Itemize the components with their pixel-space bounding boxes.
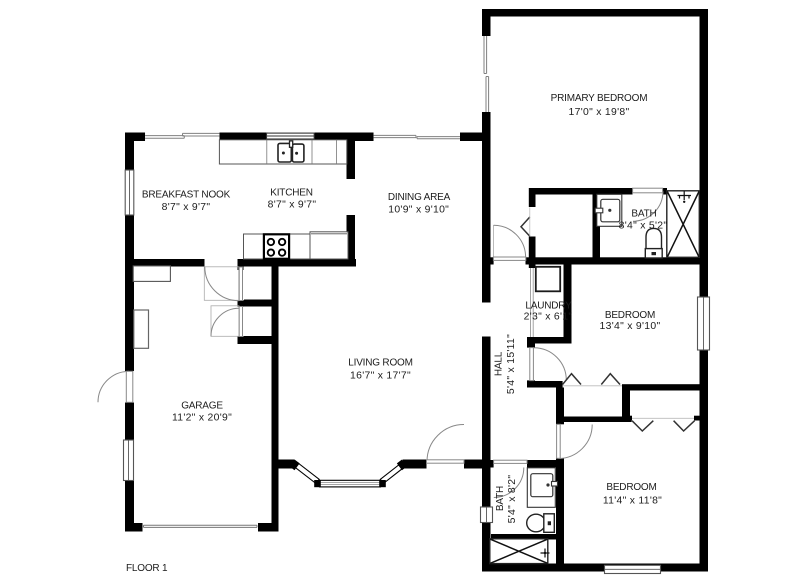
svg-text:11'4" x 11'8": 11'4" x 11'8" xyxy=(603,496,662,507)
svg-text:FLOOR 1: FLOOR 1 xyxy=(126,563,168,574)
svg-text:BEDROOM: BEDROOM xyxy=(606,482,656,493)
svg-text:BATH: BATH xyxy=(631,209,656,220)
svg-text:BREAKFAST NOOK: BREAKFAST NOOK xyxy=(142,190,231,201)
svg-text:2'3" x 6'1": 2'3" x 6'1" xyxy=(524,312,573,323)
svg-text:LAUNDRY: LAUNDRY xyxy=(525,301,572,312)
svg-text:8'7" x 9'7": 8'7" x 9'7" xyxy=(162,202,211,213)
svg-text:5'4" x 8'2": 5'4" x 8'2" xyxy=(507,475,518,524)
svg-text:5'4" x 15'11": 5'4" x 15'11" xyxy=(506,334,517,394)
svg-text:HALL: HALL xyxy=(494,351,505,376)
svg-text:GARAGE: GARAGE xyxy=(181,400,223,411)
svg-text:KITCHEN: KITCHEN xyxy=(270,188,313,199)
svg-text:13'4" x 9'10": 13'4" x 9'10" xyxy=(600,321,661,332)
svg-text:16'7" x 17'7": 16'7" x 17'7" xyxy=(350,370,411,381)
svg-text:PRIMARY BEDROOM: PRIMARY BEDROOM xyxy=(551,93,648,104)
svg-text:BATH: BATH xyxy=(495,486,506,511)
svg-text:8'4" x 5'2": 8'4" x 5'2" xyxy=(619,220,668,231)
svg-text:17'0" x 19'8": 17'0" x 19'8" xyxy=(569,107,630,118)
svg-text:11'2" x 20'9": 11'2" x 20'9" xyxy=(172,412,232,423)
svg-text:DINING AREA: DINING AREA xyxy=(388,192,451,203)
svg-text:BEDROOM: BEDROOM xyxy=(605,310,655,321)
svg-text:LIVING ROOM: LIVING ROOM xyxy=(348,358,412,369)
svg-text:10'9" x 9'10": 10'9" x 9'10" xyxy=(388,205,449,216)
svg-text:8'7" x 9'7": 8'7" x 9'7" xyxy=(268,200,317,211)
